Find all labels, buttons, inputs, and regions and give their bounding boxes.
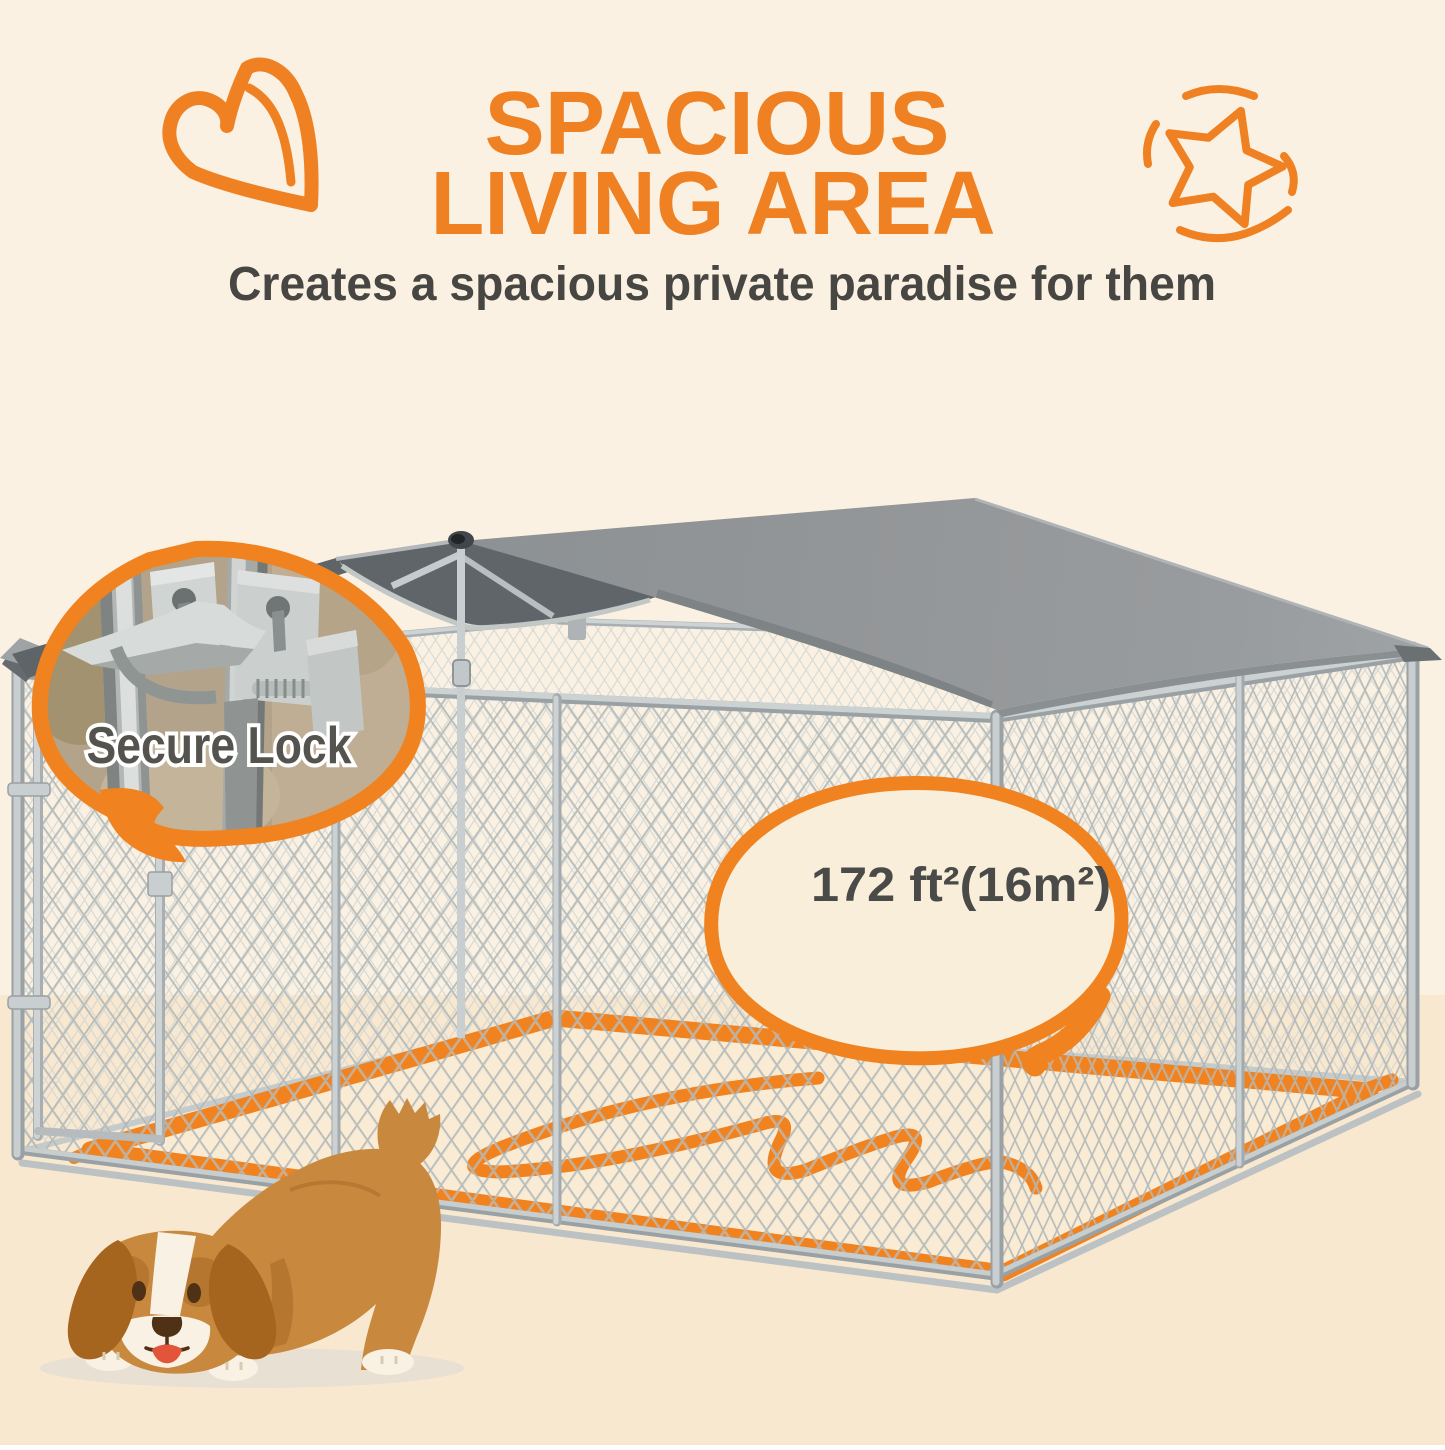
svg-text:172 ft²(16m²): 172 ft²(16m²) xyxy=(811,859,1111,912)
svg-text:Creates a spacious private par: Creates a spacious private paradise for … xyxy=(228,258,1216,311)
svg-text:LIVING AREA: LIVING AREA xyxy=(431,154,996,254)
svg-text:Secure Lock: Secure Lock xyxy=(87,717,352,775)
